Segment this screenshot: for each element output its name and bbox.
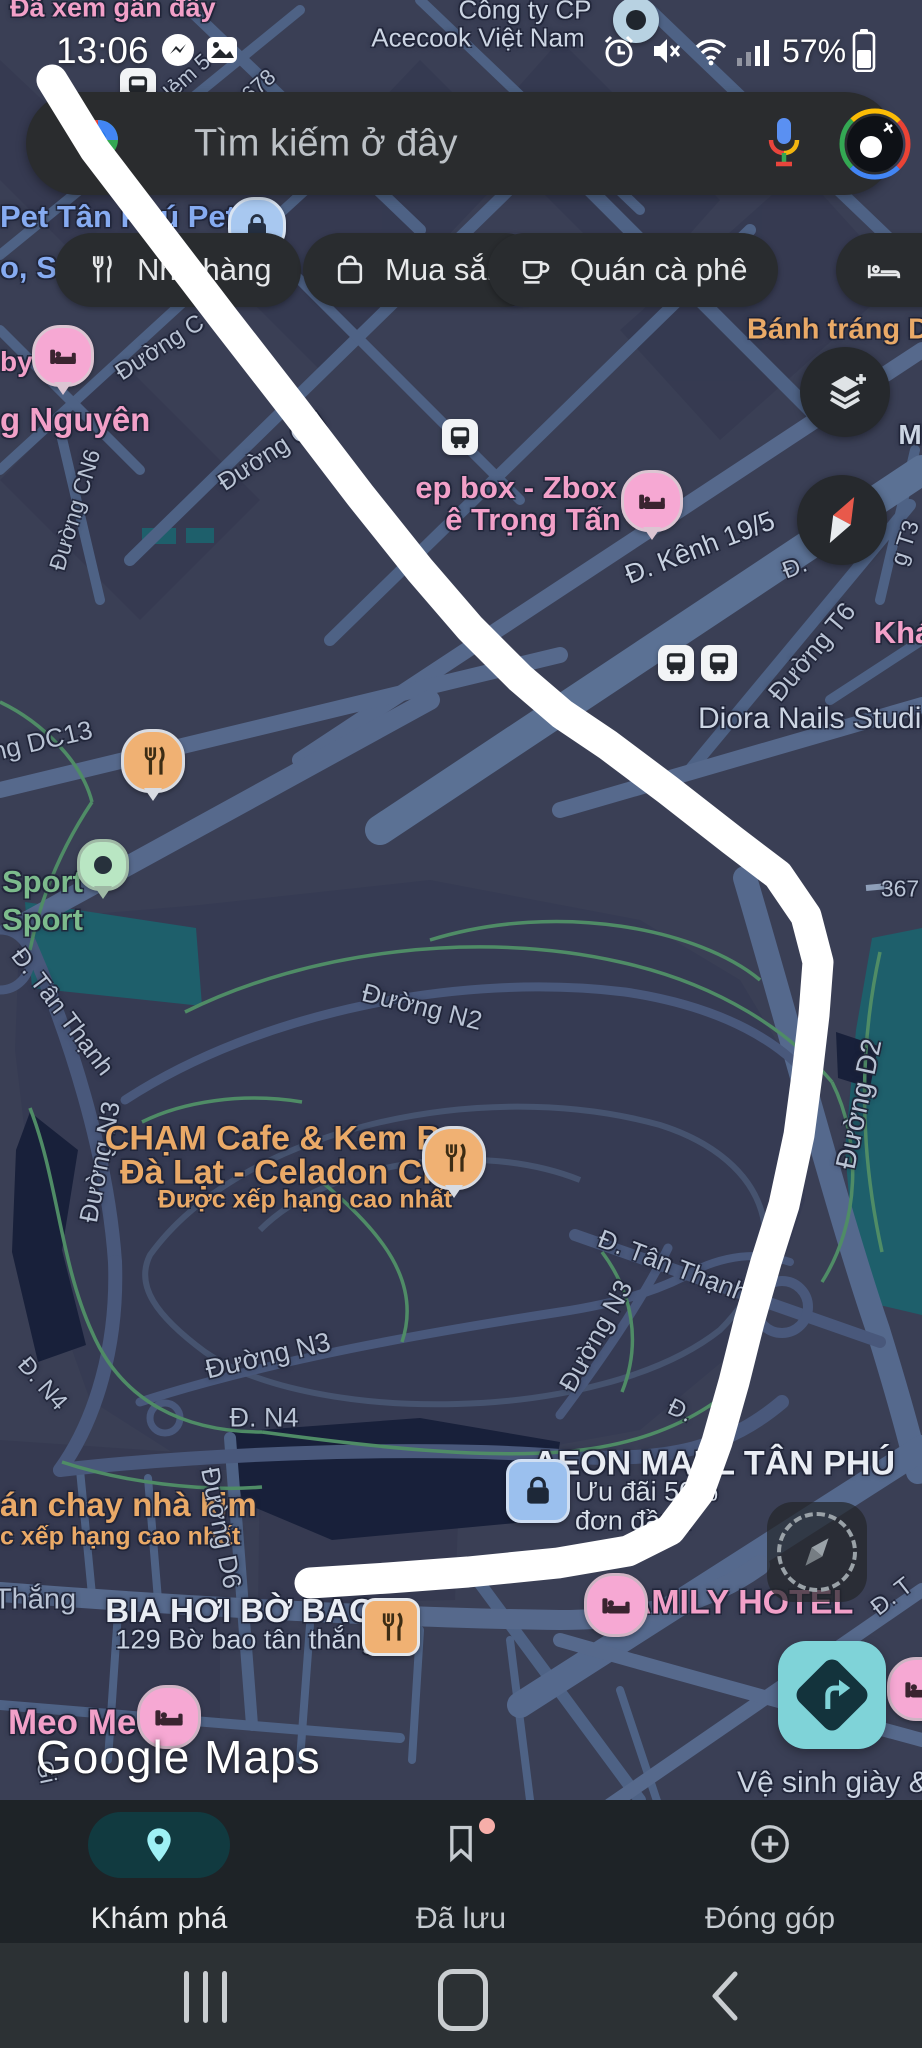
chip-label: Quán cà phê <box>570 252 748 288</box>
location-pin-icon <box>139 1825 179 1865</box>
back-button[interactable] <box>703 1968 747 2024</box>
restaurant-marker[interactable] <box>121 729 185 793</box>
shopping-bag-icon <box>333 253 367 287</box>
signal-strength-icon <box>736 32 770 75</box>
alarm-icon <box>600 32 638 75</box>
map-label: đơn đầu t <box>575 1506 690 1537</box>
map-label: BIA HƠI BỜ BAO <box>105 1592 375 1630</box>
messenger-notification-icon <box>160 32 196 73</box>
location-needle-icon <box>793 1528 841 1576</box>
bed-icon <box>866 252 902 288</box>
sound-muted-icon <box>646 32 684 75</box>
restaurant-marker[interactable] <box>422 1126 486 1190</box>
my-location-button[interactable] <box>767 1502 867 1602</box>
compass-needle-icon <box>810 488 874 552</box>
hotel-marker[interactable] <box>621 470 683 532</box>
gallery-notification-icon <box>204 32 240 73</box>
map-label: Đường N3 <box>202 1327 333 1386</box>
tab-label: Đóng góp <box>650 1902 890 1936</box>
map-label: Đ. N4 <box>229 1403 298 1434</box>
bus-stop-marker[interactable] <box>442 419 478 455</box>
voice-search-icon[interactable] <box>764 114 804 177</box>
map-label: Sport <box>2 864 83 900</box>
map-label: Đ. Tân Thạnh <box>5 943 120 1082</box>
map-label: án chay nhà kim <box>0 1486 257 1524</box>
mall-marker[interactable] <box>506 1459 570 1523</box>
map-label: Đường N3 <box>553 1275 640 1397</box>
map-label: ep box - Zbox <box>415 470 617 506</box>
map-label: Đ. <box>663 1393 697 1429</box>
compass-button[interactable] <box>797 475 887 565</box>
account-avatar[interactable] <box>838 107 912 186</box>
map-label: Đường CN6 <box>44 446 106 574</box>
map-label: Đ. Tân Thạnh <box>594 1223 753 1309</box>
bus-stop-marker[interactable] <box>701 645 737 681</box>
layers-button[interactable] <box>800 347 890 437</box>
map-label: Đ. N4 <box>11 1352 72 1417</box>
home-button[interactable] <box>438 1969 488 2031</box>
map-label: Đ. <box>779 551 811 586</box>
map-label: Bánh tráng Dâ <box>747 314 922 347</box>
map-label: Diora Nails Studio <box>698 702 922 736</box>
coffee-icon <box>518 253 552 287</box>
map-label: Ưu đãi 50% <box>575 1477 718 1508</box>
map-label: M <box>898 419 921 451</box>
wifi-icon <box>692 32 730 75</box>
map-label: Đường T6 <box>762 596 862 707</box>
chip-coffee[interactable]: Quán cà phê <box>488 233 778 307</box>
hotel-marker[interactable] <box>32 325 94 387</box>
tab-label: Đã lưu <box>341 1902 581 1936</box>
android-navigation-bar <box>0 1943 922 2048</box>
search-bar[interactable]: Tìm kiếm ở đây <box>26 92 896 195</box>
bottom-navigation: Khám phá Đã lưu Đóng góp <box>0 1800 922 1943</box>
sport-marker[interactable] <box>77 839 129 891</box>
battery-percent: 57% <box>782 33 846 70</box>
map-label: Thắng <box>0 1584 76 1617</box>
search-input[interactable]: Tìm kiếm ở đây <box>194 122 458 165</box>
chip-restaurants[interactable]: Nhà hàng <box>55 233 301 307</box>
map-label: Đường N2 <box>359 977 485 1037</box>
notification-dot <box>479 1818 495 1834</box>
status-bar: 13:06 57% <box>0 0 922 78</box>
map-label: by <box>0 346 33 378</box>
map-label: Đường D6 <box>194 1465 248 1591</box>
map-label: ng DC13 <box>0 714 95 767</box>
google-maps-app: Đã xem gần đâyCông ty CPAcecook Việt Nam… <box>0 0 922 2048</box>
battery-icon <box>852 28 876 77</box>
chip-hotels[interactable]: Kh <box>836 233 922 307</box>
map-label: c xếp hạng cao nhất <box>0 1523 240 1552</box>
layers-icon <box>819 366 871 418</box>
bus-stop-marker[interactable] <box>658 645 694 681</box>
map-label: 129 Bờ bao tân thắng <box>116 1625 377 1656</box>
clock: 13:06 <box>56 30 149 72</box>
map-label: Đường N3 <box>73 1099 127 1225</box>
turn-arrow-icon <box>804 1667 860 1723</box>
map-label: g T3 <box>885 517 922 569</box>
map-label: Vệ sinh giày & G <box>737 1766 922 1800</box>
google-maps-pin-logo <box>70 116 126 177</box>
map-label: ê Trọng Tấn <box>445 502 621 538</box>
map-label: AEON MALL TÂN PHÚ <box>533 1445 895 1484</box>
map-label: Đường CN <box>213 407 331 498</box>
chip-label: Nhà hàng <box>137 252 271 288</box>
map-label: g Nguyên <box>0 401 150 439</box>
map-label: Đường D2 <box>830 1036 889 1172</box>
recents-bar-icon <box>222 1971 227 2023</box>
hotel-marker[interactable] <box>584 1573 648 1637</box>
map-label: o, S <box>0 250 57 286</box>
map-label: CHẠM Cafe & Kem Bơ <box>105 1120 465 1159</box>
map-label: Khá <box>874 615 922 651</box>
bookmark-icon <box>439 1822 483 1866</box>
restaurant-marker[interactable] <box>362 1598 420 1656</box>
google-maps-watermark: Google Maps <box>36 1730 321 1784</box>
recents-bar-icon <box>203 1971 208 2023</box>
map-label: Pet Tân Phú Pet <box>0 199 236 235</box>
recents-bar-icon <box>184 1971 189 2023</box>
map-label: Được xếp hạng cao nhất <box>158 1186 452 1215</box>
map-label: Đà Lạt - Celadon City <box>120 1154 462 1193</box>
hotel-marker[interactable] <box>887 1657 922 1721</box>
restaurant-icon <box>85 253 119 287</box>
tab-label: Khám phá <box>39 1902 279 1936</box>
add-circle-icon <box>748 1822 792 1866</box>
map-label: Đ. T <box>866 1572 919 1622</box>
map-label: 367 <box>881 876 919 903</box>
directions-button[interactable] <box>778 1641 886 1749</box>
map-label: Sport <box>2 902 83 938</box>
map-label: Đường C <box>111 309 210 387</box>
